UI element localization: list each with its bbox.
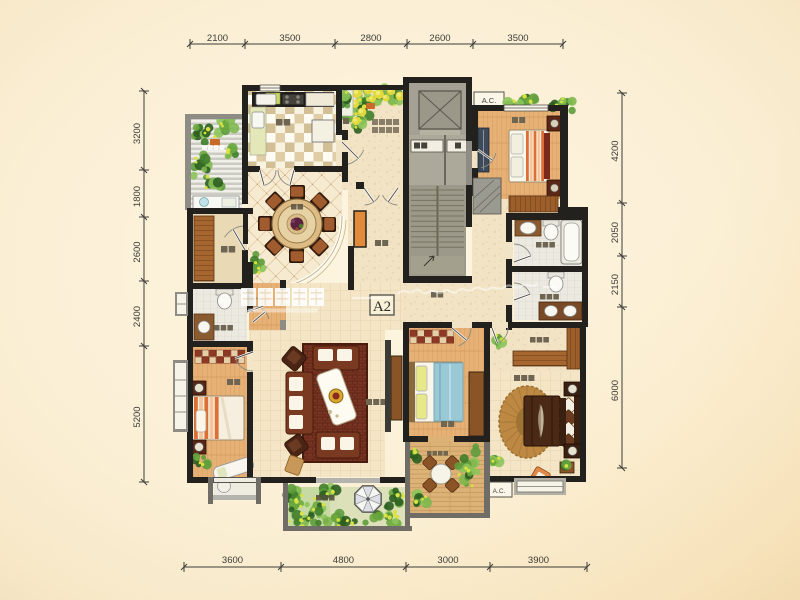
svg-text:3200: 3200 xyxy=(132,123,143,144)
svg-text:1800: 1800 xyxy=(132,186,143,207)
svg-text:A2: A2 xyxy=(373,299,391,315)
svg-text:3500: 3500 xyxy=(507,33,528,44)
svg-text:6000: 6000 xyxy=(610,380,621,401)
svg-text:2050: 2050 xyxy=(610,222,621,243)
svg-text:3500: 3500 xyxy=(279,33,300,44)
svg-text:3600: 3600 xyxy=(222,555,243,566)
svg-text:2150: 2150 xyxy=(610,274,621,295)
svg-text:2600: 2600 xyxy=(429,33,450,44)
svg-text:2600: 2600 xyxy=(132,241,143,262)
svg-text:3900: 3900 xyxy=(528,555,549,566)
svg-text:5200: 5200 xyxy=(132,406,143,427)
svg-text:3000: 3000 xyxy=(437,555,458,566)
svg-text:4800: 4800 xyxy=(333,555,354,566)
svg-text:A.C.: A.C. xyxy=(493,488,506,495)
svg-text:2400: 2400 xyxy=(132,306,143,327)
svg-text:A.C.: A.C. xyxy=(482,96,497,105)
svg-text:2800: 2800 xyxy=(360,33,381,44)
svg-text:4200: 4200 xyxy=(610,140,621,161)
svg-text:2100: 2100 xyxy=(207,33,228,44)
